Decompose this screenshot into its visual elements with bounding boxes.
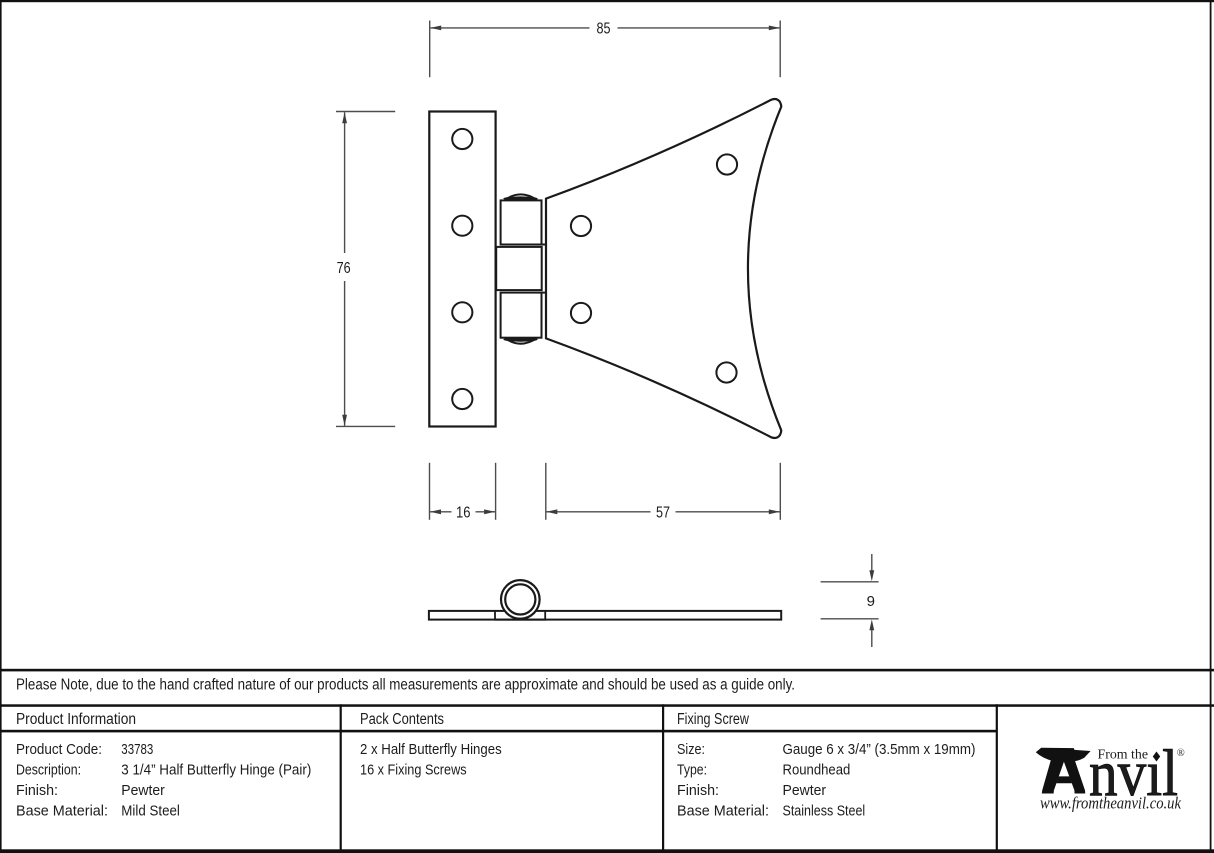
svg-text:9: 9 [867,593,875,610]
svg-text:57: 57 [656,505,670,522]
svg-text:Product Information: Product Information [16,711,136,728]
svg-text:®: ® [1177,748,1185,759]
svg-text:Gauge 6 x 3/4” (3.5mm x 19mm): Gauge 6 x 3/4” (3.5mm x 19mm) [783,741,976,758]
svg-text:Pewter: Pewter [783,782,827,799]
svg-text:Base Material:: Base Material: [677,802,769,819]
svg-text:Product Code:: Product Code: [16,741,102,758]
svg-text:Finish:: Finish: [16,782,58,799]
svg-text:Size:: Size: [677,741,705,758]
svg-text:Roundhead: Roundhead [783,761,851,778]
svg-text:Finish:: Finish: [677,782,719,799]
svg-text:76: 76 [337,260,351,277]
svg-text:2 x Half Butterfly Hinges: 2 x Half Butterfly Hinges [360,741,502,758]
svg-text:Fixing Screw: Fixing Screw [677,711,750,728]
svg-text:85: 85 [597,21,611,38]
svg-text:Stainless Steel: Stainless Steel [783,802,866,819]
svg-text:3 1/4” Half Butterfly Hinge (P: 3 1/4” Half Butterfly Hinge (Pair) [121,761,311,778]
svg-text:16 x Fixing Screws: 16 x Fixing Screws [360,761,467,778]
svg-text:Please Note, due to the hand c: Please Note, due to the hand crafted nat… [16,677,795,694]
svg-text:16: 16 [456,505,471,522]
svg-text:33783: 33783 [121,741,153,758]
svg-text:www.fromtheanvil.co.uk: www.fromtheanvil.co.uk [1040,794,1182,813]
svg-text:Type:: Type: [677,761,707,778]
svg-text:Description:: Description: [16,761,81,778]
svg-text:From the: From the [1098,747,1149,762]
svg-text:Base Material:: Base Material: [16,802,108,819]
svg-text:Pewter: Pewter [121,782,165,799]
svg-text:Mild Steel: Mild Steel [121,802,180,819]
svg-text:Pack Contents: Pack Contents [360,711,444,728]
